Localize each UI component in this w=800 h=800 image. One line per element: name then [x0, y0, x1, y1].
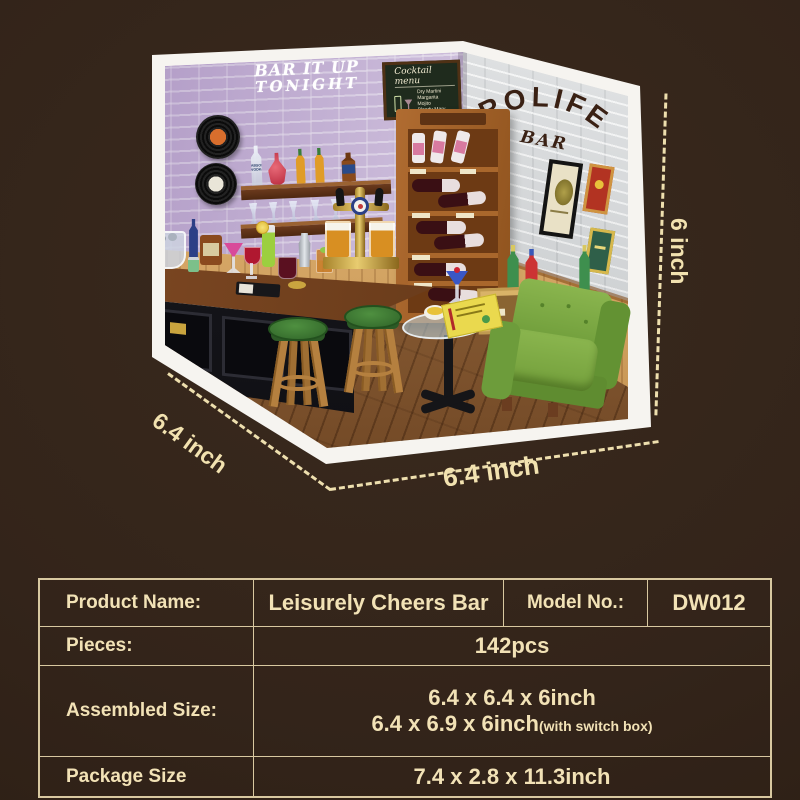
- soda-can: [188, 257, 199, 272]
- ice-cube: [168, 233, 177, 241]
- glass-2: [267, 202, 279, 224]
- stool-seat-right: [344, 305, 402, 329]
- spec-value-product-name: Leisurely Cheers Bar: [253, 580, 503, 626]
- vinyl-record-top: [196, 115, 240, 159]
- green-armchair: [486, 285, 624, 409]
- vodka-bottle: ABSOLUT VODKA: [249, 145, 264, 186]
- menu-book-dot: [481, 314, 490, 323]
- backrest-button-2: [566, 304, 571, 309]
- ashtray: [288, 281, 306, 289]
- assembled-size-line2: 6.4 x 6.9 x 6inch: [371, 711, 539, 736]
- spec-row-assembled-size: Assembled Size: 6.4 x 6.4 x 6inch 6.4 x …: [40, 665, 770, 756]
- product-page: { "colors": { "page_background": "#33241…: [0, 0, 800, 800]
- stool-leg: [269, 339, 289, 408]
- wall-sign: BAR IT UP TONIGHT: [231, 58, 382, 97]
- bottle-label-pink: [454, 140, 468, 154]
- glass-1: [248, 203, 260, 225]
- lime-cocktail: [262, 225, 275, 267]
- spec-value-package-size: 7.4 x 2.8 x 11.3inch: [253, 757, 770, 796]
- spec-value-model-no: DW012: [647, 580, 770, 626]
- stool-foot-ring: [276, 375, 320, 391]
- beer-tap-set: [323, 187, 399, 273]
- spec-label-model-no: Model No.:: [503, 580, 647, 626]
- orange-bottle-1: [294, 148, 307, 183]
- poster-text-line: [550, 210, 568, 214]
- tap-handle-left: [335, 188, 345, 207]
- orange-bottle-2: [313, 148, 326, 183]
- spec-label-assembled-size: Assembled Size:: [40, 666, 253, 756]
- snacks: [427, 307, 443, 315]
- spec-label-pieces: Pieces:: [40, 627, 253, 665]
- lemon-wheel: [256, 221, 269, 234]
- beer-mug-left: [325, 221, 351, 259]
- whiskey-label: [342, 164, 355, 174]
- bar-stool-right: [344, 305, 404, 405]
- bottle-label-pink: [413, 143, 424, 155]
- dimension-label-right: 6 inch: [665, 218, 692, 284]
- tap-drip-tray: [323, 257, 399, 269]
- whiskey-counter-label: [203, 243, 219, 256]
- spec-table: Product Name: Leisurely Cheers Bar Model…: [38, 578, 772, 798]
- poster-green-text: [594, 245, 605, 250]
- rack-tag-3: [412, 213, 430, 218]
- tap-handle-right: [374, 188, 384, 207]
- stool-leg: [286, 341, 297, 405]
- poster-orange-emblem: [594, 179, 604, 189]
- vinyl-record-bottom: [195, 163, 237, 205]
- wine-glass-stem: [250, 263, 253, 275]
- vodka-bottle-label: ABSOLUT VODKA: [251, 163, 262, 171]
- lying-bottle-3: [416, 221, 466, 234]
- stool-leg: [309, 339, 329, 408]
- beer-badge-dot: [358, 204, 363, 209]
- rack-tag-1: [410, 169, 426, 174]
- lying-bottle-2: [437, 191, 486, 209]
- red-decanter: [267, 152, 286, 185]
- standing-bottle-3: [450, 130, 470, 164]
- whiskey-bottle-shelf: [339, 152, 357, 182]
- cherry-garnish: [454, 267, 460, 273]
- stool-foot-ring: [351, 361, 395, 377]
- chalkboard-title: Cocktail menu: [394, 65, 455, 88]
- poster-beer-label: [553, 178, 574, 206]
- menu-book-art: [448, 308, 456, 330]
- standing-bottle-2: [430, 130, 447, 163]
- assembled-size-line2-wrap: 6.4 x 6.9 x 6inch(with switch box): [371, 711, 652, 737]
- glass-3: [287, 201, 299, 223]
- beer-mug-right: [369, 221, 395, 259]
- pub-table: [400, 265, 504, 425]
- bottle-label-pink: [432, 140, 445, 153]
- whiskey-bottle-counter: [200, 235, 222, 265]
- rack-tag-4: [456, 213, 474, 218]
- beer-badge: [351, 197, 369, 215]
- standing-bottle-1: [412, 133, 425, 163]
- notebook-page: [239, 284, 254, 294]
- spec-row-pieces: Pieces: 142pcs: [40, 626, 770, 665]
- spec-label-package-size: Package Size: [40, 757, 253, 796]
- blue-martini: [446, 271, 468, 303]
- stool-leg: [344, 327, 363, 394]
- lying-bottle-4: [434, 233, 485, 250]
- dark-cocktail-glass: [278, 257, 297, 279]
- glass-4: [309, 199, 321, 221]
- backrest-button-1: [540, 303, 545, 308]
- red-wine-glass: [244, 247, 259, 279]
- table-stem: [444, 335, 453, 403]
- assembled-size-note: (with switch box): [539, 718, 653, 734]
- assembled-size-line1: 6.4 x 6.4 x 6inch: [428, 685, 596, 711]
- wine-rack-top-slot: [420, 113, 486, 125]
- armchair-foot-2: [548, 403, 558, 417]
- spec-label-product-name: Product Name:: [40, 580, 253, 626]
- stool-seat-left: [268, 317, 328, 341]
- spec-row-product-name: Product Name: Leisurely Cheers Bar Model…: [40, 580, 770, 626]
- bar-stool-left: [268, 317, 330, 417]
- menu-book: [441, 294, 503, 339]
- wine-glass-foot: [246, 276, 257, 279]
- backrest-button-3: [584, 319, 589, 324]
- rack-tag-5: [412, 255, 430, 260]
- lying-bottle-1: [412, 179, 460, 192]
- spec-value-pieces: 142pcs: [253, 627, 770, 665]
- miniature-bar-photo: BAR IT UP TONIGHT ABSOLUT VODKA: [140, 35, 670, 500]
- stool-leg: [361, 329, 372, 391]
- spec-value-assembled-size: 6.4 x 6.4 x 6inch 6.4 x 6.9 x 6inch(with…: [253, 666, 770, 756]
- rack-tag-2: [460, 169, 476, 174]
- menu-book-line: [456, 310, 482, 317]
- spec-row-package-size: Package Size 7.4 x 2.8 x 11.3inch: [40, 756, 770, 796]
- counter-plaque: [170, 322, 186, 335]
